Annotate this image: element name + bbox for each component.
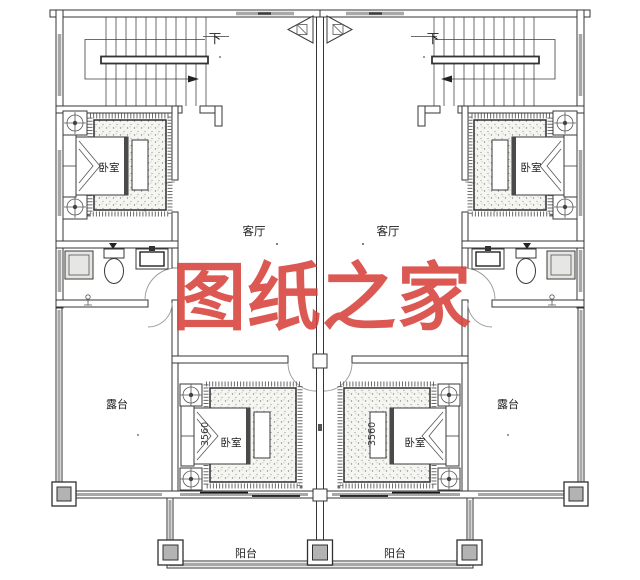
floor-plan-page: 下 下 卧室 卧室 客厅 客厅 卧室 卧室 露台 露台 阳台 阳台 3560 3… xyxy=(0,0,640,580)
terrace-label-left: 露台 xyxy=(106,397,128,411)
stair-down-label-left: 下 xyxy=(209,31,222,46)
toilet-tank xyxy=(104,249,124,258)
watermark-text: 图纸之家 xyxy=(172,255,472,341)
faucet-icon xyxy=(149,246,155,251)
living-room-label-left: 客厅 xyxy=(243,224,266,238)
staircase xyxy=(85,17,229,106)
bed-dimension-right: 3560 xyxy=(367,422,378,446)
terrace-column xyxy=(52,482,76,506)
living-room-label-right: 客厅 xyxy=(377,224,400,238)
toilet xyxy=(105,259,124,284)
stair-direction-arrow xyxy=(188,76,199,83)
bedroom-label-se: 卧室 xyxy=(405,436,426,449)
balcony-column xyxy=(308,540,333,565)
bedroom-label-sw: 卧室 xyxy=(221,436,242,449)
stair-down-label-right: 下 xyxy=(427,31,440,46)
vent-triangle-icon xyxy=(327,16,352,43)
bedroom-label-ne: 卧室 xyxy=(521,161,542,174)
bench xyxy=(132,140,148,190)
bench xyxy=(254,412,270,458)
balcony-label-right: 阳台 xyxy=(384,546,406,560)
bathroom xyxy=(65,243,168,305)
balcony-column xyxy=(457,540,482,565)
floor-plan-canvas: 下 下 卧室 卧室 客厅 客厅 卧室 卧室 露台 露台 阳台 阳台 3560 3… xyxy=(0,0,640,580)
balcony-column xyxy=(158,540,183,565)
balcony-label-left: 阳台 xyxy=(235,546,257,560)
terrace-label-right: 露台 xyxy=(497,397,519,411)
bed-dimension-left: 3560 xyxy=(200,422,211,446)
bedroom-label-nw: 卧室 xyxy=(99,161,120,174)
vent-triangle-icon xyxy=(288,16,313,43)
